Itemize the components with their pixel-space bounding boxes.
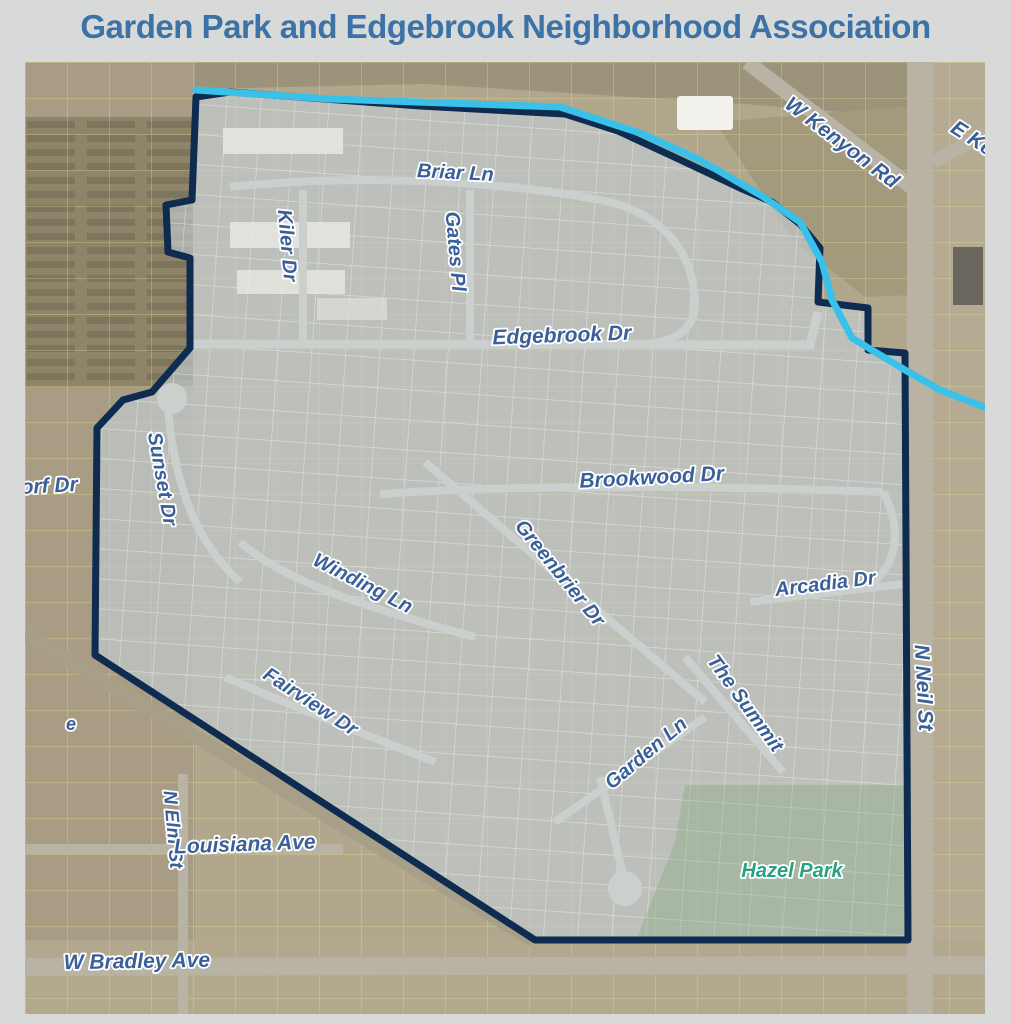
apartment-building [317, 298, 387, 320]
page-title: Garden Park and Edgebrook Neighborhood A… [0, 8, 1011, 46]
street-label-w-bradley-ave: W Bradley Ave [64, 949, 211, 975]
street-label-briar-ln: Briar Ln [416, 160, 494, 186]
street-label-orf-dr: orf Dr [25, 473, 80, 499]
street-label-partial-street-e: e [66, 714, 76, 734]
building-white-large [677, 96, 733, 130]
apartment-building [223, 128, 343, 154]
street-label-n-neil-st: N Neil St [910, 644, 938, 732]
aerial-map-image: Briar LnKiler DrGates PlEdgebrook DrSuns… [25, 62, 985, 1014]
street-label-hazel-park: Hazel Park [741, 860, 843, 882]
neighborhood-map: Briar LnKiler DrGates PlEdgebrook DrSuns… [25, 62, 985, 1014]
building-dark [953, 247, 983, 305]
street-label-edgebrook-dr: Edgebrook Dr [492, 322, 633, 350]
